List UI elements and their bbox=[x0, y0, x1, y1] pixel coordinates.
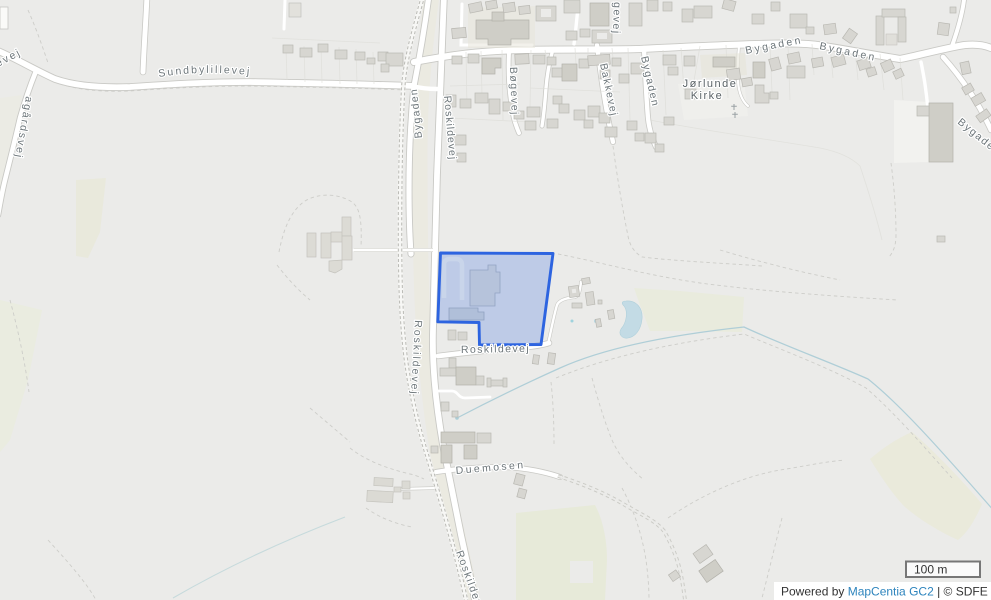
svg-text:Powered by MapCentia GC2 | © S: Powered by MapCentia GC2 | © SDFE bbox=[781, 585, 988, 599]
svg-text:100 m: 100 m bbox=[914, 563, 947, 577]
svg-text:Kirke: Kirke bbox=[691, 90, 724, 102]
svg-text:gevej: gevej bbox=[610, 2, 623, 35]
svg-text:Jørlunde: Jørlunde bbox=[683, 78, 738, 90]
svg-text:Bøgevej: Bøgevej bbox=[507, 67, 521, 116]
svg-text:Roskildevej: Roskildevej bbox=[461, 343, 530, 356]
